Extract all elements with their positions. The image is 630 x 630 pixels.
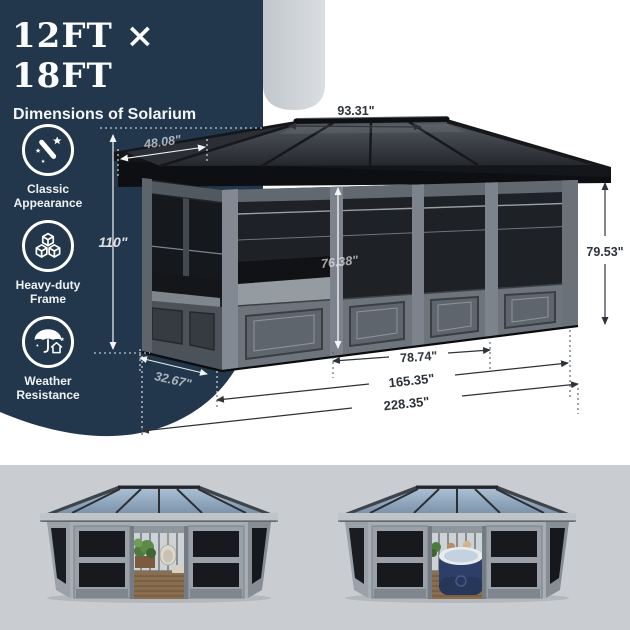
dim-base-width: 165.35" bbox=[217, 363, 568, 400]
dim-wall-height-label: 79.53" bbox=[586, 245, 623, 259]
thumbnail-solarium-hot-tub bbox=[336, 481, 578, 603]
thumbnail-solarium-furnished bbox=[38, 481, 280, 603]
dim-ridge-width-label: 93.31" bbox=[337, 104, 374, 118]
dim-door-width-label: 78.74" bbox=[400, 349, 438, 366]
dim-wall-height: 79.53" bbox=[586, 183, 623, 324]
dim-total-height-label: 110" bbox=[99, 234, 128, 250]
dim-side-depth-label: 32.67" bbox=[153, 369, 193, 391]
solarium-illustration bbox=[113, 117, 611, 372]
thumbnail-strip bbox=[0, 465, 630, 630]
dim-total-width-label: 228.35" bbox=[383, 394, 430, 414]
solarium-left-face bbox=[142, 178, 222, 371]
solarium-front-face bbox=[222, 180, 578, 371]
dim-total-width: 228.35" bbox=[142, 384, 578, 431]
solarium-dimensions-infographic: 12FT × 18FT Dimensions of Solarium Class… bbox=[0, 0, 630, 630]
dim-base-width-label: 165.35" bbox=[388, 371, 435, 391]
